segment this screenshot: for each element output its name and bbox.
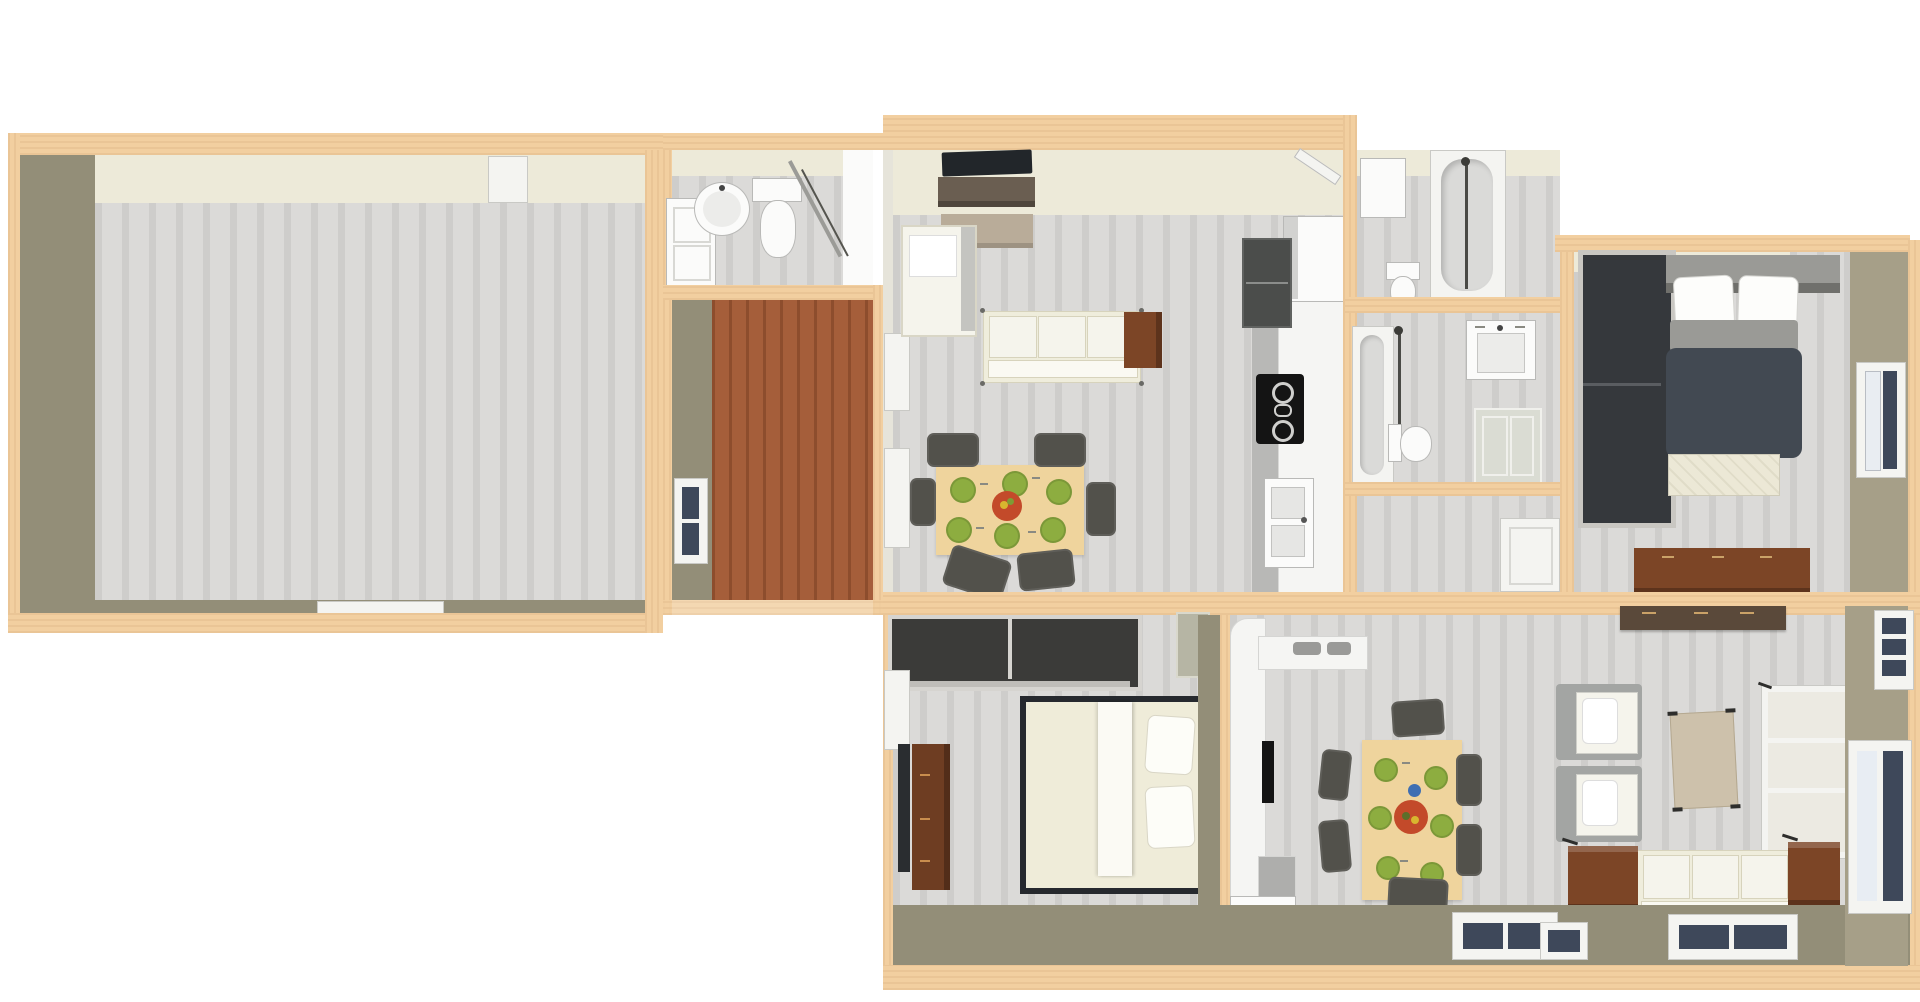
coffee-table-b bbox=[1670, 710, 1739, 809]
window-south-living bbox=[1668, 914, 1798, 960]
wall-top-bedroomA-west bbox=[1560, 252, 1574, 610]
sliding-door-livingB bbox=[1848, 740, 1912, 914]
closet-door-panel bbox=[1500, 518, 1560, 592]
side-table-a bbox=[1124, 312, 1162, 368]
built-in-closet-b bbox=[888, 615, 1142, 691]
dresser-b bbox=[912, 744, 950, 890]
window-livingB-east bbox=[1874, 610, 1914, 690]
blue-plate bbox=[1408, 784, 1421, 797]
round-wash-basin bbox=[694, 182, 750, 236]
window-bedroomA-east bbox=[1856, 362, 1906, 478]
bath-cabinet-2 bbox=[1474, 408, 1542, 484]
dining-chair bbox=[927, 433, 979, 467]
dining-chair bbox=[1034, 433, 1086, 467]
dining-chair bbox=[1086, 482, 1116, 536]
shower-column bbox=[1465, 161, 1468, 289]
window-bedroomB-west bbox=[884, 670, 910, 750]
dining-chair bbox=[1456, 824, 1482, 876]
cooktop-a bbox=[1256, 374, 1304, 444]
toilet-bowl-2 bbox=[1400, 426, 1432, 462]
wall-top-entry-divider bbox=[663, 285, 883, 300]
wardrobe-a bbox=[1578, 250, 1676, 528]
sofa-a bbox=[983, 311, 1141, 383]
armchair-b1 bbox=[1556, 684, 1642, 760]
oven-b bbox=[1262, 741, 1274, 803]
dining-table-a bbox=[936, 465, 1084, 555]
wall-top-bath2-south bbox=[1345, 482, 1583, 496]
wall-top-bath-divider bbox=[1345, 297, 1580, 313]
sofa-cushion bbox=[989, 316, 1037, 358]
bed-a-duvet bbox=[1666, 348, 1802, 458]
wall-top-entry-south bbox=[663, 600, 883, 615]
shower-head-2 bbox=[1394, 326, 1403, 335]
armchair-b2 bbox=[1556, 766, 1642, 842]
wall-top-studio-east bbox=[645, 150, 663, 633]
window-livingA-west-2 bbox=[884, 448, 910, 548]
floorplan-canvas bbox=[0, 0, 1920, 1002]
wall-top-south-west bbox=[8, 613, 663, 633]
toilet-bowl bbox=[760, 200, 796, 258]
window-south-small bbox=[1540, 922, 1588, 960]
wall-top-unitB-south bbox=[883, 965, 1920, 990]
sink-basin bbox=[1293, 642, 1321, 655]
wall-top-west bbox=[8, 133, 20, 633]
basin-faucet bbox=[719, 185, 725, 191]
armchair-cushion bbox=[909, 235, 957, 277]
dining-table-b bbox=[1362, 740, 1462, 900]
wall-shelf-b bbox=[1620, 606, 1786, 630]
dishwasher-b bbox=[1258, 856, 1296, 898]
dining-chair bbox=[1318, 819, 1352, 873]
cube-side-table-1 bbox=[1568, 846, 1638, 912]
pillow bbox=[1144, 785, 1195, 849]
wall-sink-2 bbox=[1466, 320, 1536, 380]
dining-chair bbox=[1391, 698, 1445, 738]
bathtub-2 bbox=[1352, 326, 1394, 486]
dining-chair bbox=[910, 478, 936, 526]
tv-flatscreen bbox=[942, 149, 1033, 176]
window-hall-west bbox=[674, 478, 708, 564]
sink-basin bbox=[1271, 525, 1305, 557]
tv-bedroomB bbox=[898, 744, 910, 872]
window-mullion bbox=[682, 519, 699, 523]
bed-b-folded-blanket bbox=[1098, 702, 1132, 876]
dining-chair bbox=[1016, 548, 1076, 592]
basin-bowl bbox=[703, 191, 741, 227]
sink-basin bbox=[1271, 487, 1305, 519]
wall-top-livingA-north bbox=[883, 115, 1357, 150]
wall-cabinet-bath1 bbox=[1360, 158, 1406, 218]
wall-top-north-west bbox=[8, 133, 663, 155]
shower-tray bbox=[843, 150, 873, 285]
dining-chair bbox=[1317, 749, 1352, 802]
door-studio-north bbox=[488, 156, 528, 203]
armchair-a bbox=[901, 225, 977, 337]
bed-bench-a bbox=[1668, 454, 1780, 496]
kitchen-b-counter-horizontal bbox=[1258, 636, 1368, 670]
dresser-a bbox=[1634, 548, 1810, 596]
room-entry-hall-floor bbox=[712, 300, 873, 600]
fridge-a bbox=[1283, 216, 1345, 302]
sofa-seat bbox=[988, 360, 1138, 378]
kitchen-sink-a bbox=[1264, 478, 1314, 568]
pillow bbox=[1144, 714, 1196, 775]
room-studio-floor bbox=[95, 203, 645, 600]
toilet-tank bbox=[752, 178, 802, 202]
bathtub-1 bbox=[1430, 150, 1506, 302]
shower-head bbox=[1461, 157, 1470, 166]
sink-basin bbox=[1327, 642, 1351, 655]
sofa-cushion bbox=[1038, 316, 1086, 358]
sink-basin bbox=[1477, 333, 1525, 373]
bed-b bbox=[1020, 696, 1214, 894]
vanity-door-panel bbox=[673, 245, 711, 281]
window-livingA-west-1 bbox=[884, 333, 910, 411]
wall-face-north-studio bbox=[20, 155, 650, 203]
tv-stand bbox=[938, 177, 1035, 207]
wall-top-entry-north bbox=[663, 133, 883, 150]
fruit-bowl bbox=[1394, 800, 1428, 834]
fruit-bowl bbox=[992, 491, 1022, 521]
wall-top-entry-east bbox=[873, 285, 883, 615]
upper-cabinet-a bbox=[1242, 238, 1292, 328]
armchair-side bbox=[961, 227, 975, 331]
dining-chair bbox=[1456, 754, 1482, 806]
wall-face-west-studio bbox=[20, 155, 95, 613]
cube-side-table-2 bbox=[1788, 842, 1840, 908]
